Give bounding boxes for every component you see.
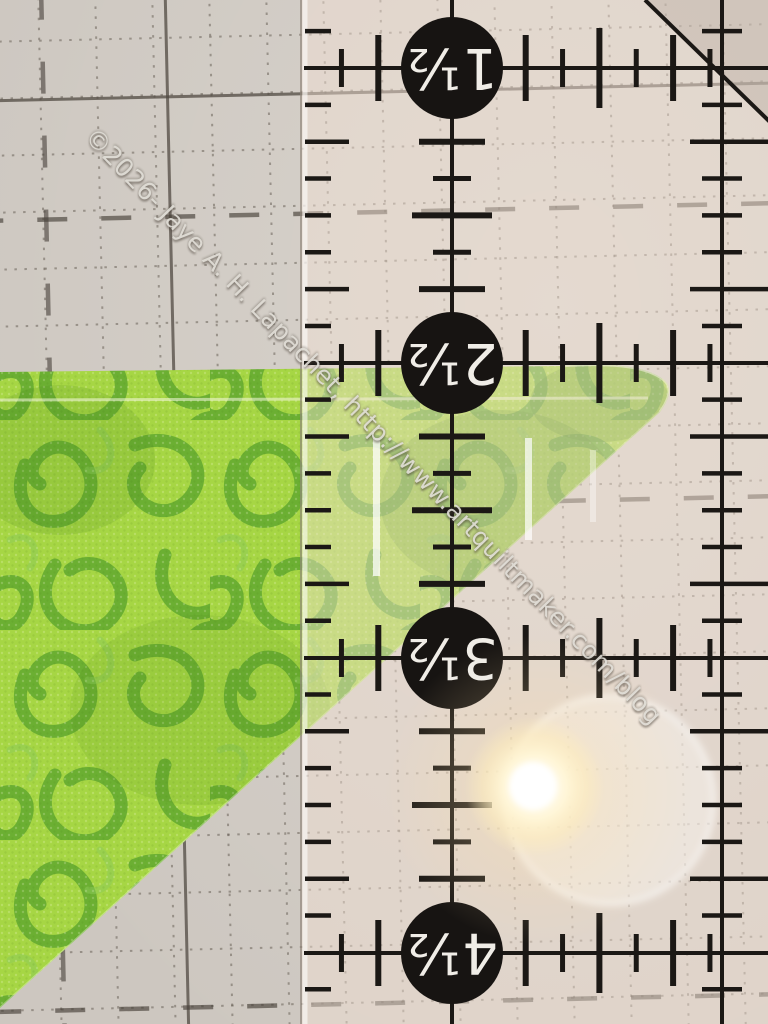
quilting-ruler-photo: 1½ 2½ 3½ 4½ ©2026- Jaye A. H. Lapachet, … (0, 0, 768, 1024)
ruler-label-2-half: 2½ (387, 329, 517, 397)
ruler-label-1-half: 1½ (387, 34, 517, 102)
ruler-label-4-half: 4½ (387, 919, 517, 987)
ruler-label-3-half: 3½ (387, 624, 517, 692)
